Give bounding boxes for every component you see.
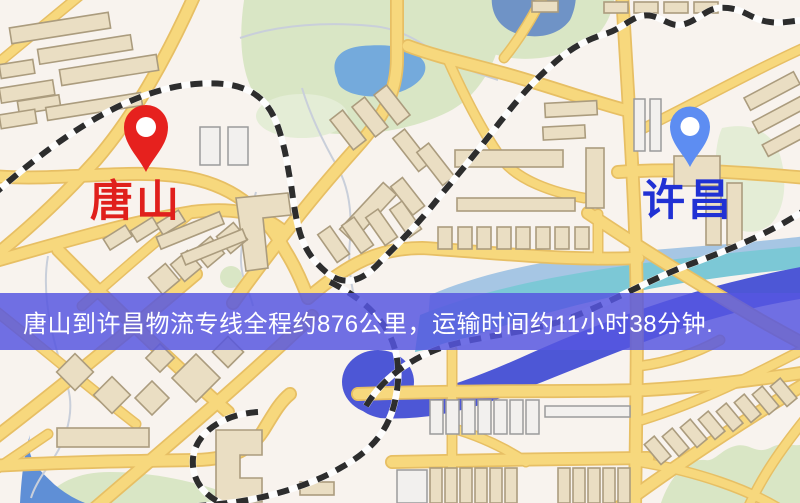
origin-pin-icon: [120, 100, 172, 176]
destination-label: 许昌: [642, 180, 734, 223]
route-info-text: 唐山到许昌物流专线全程约876公里，运输时间约11小时38分钟.: [23, 304, 713, 339]
destination-pin-icon: [667, 103, 713, 171]
map-screenshot: 唐山 许昌 唐山到许昌物流专线全程约876公里，运输时间约11小时38分钟.: [0, 0, 800, 503]
route-info-banner: 唐山到许昌物流专线全程约876公里，运输时间约11小时38分钟.: [0, 293, 800, 350]
map-canvas: [0, 0, 800, 503]
origin-label: 唐山: [90, 181, 182, 224]
